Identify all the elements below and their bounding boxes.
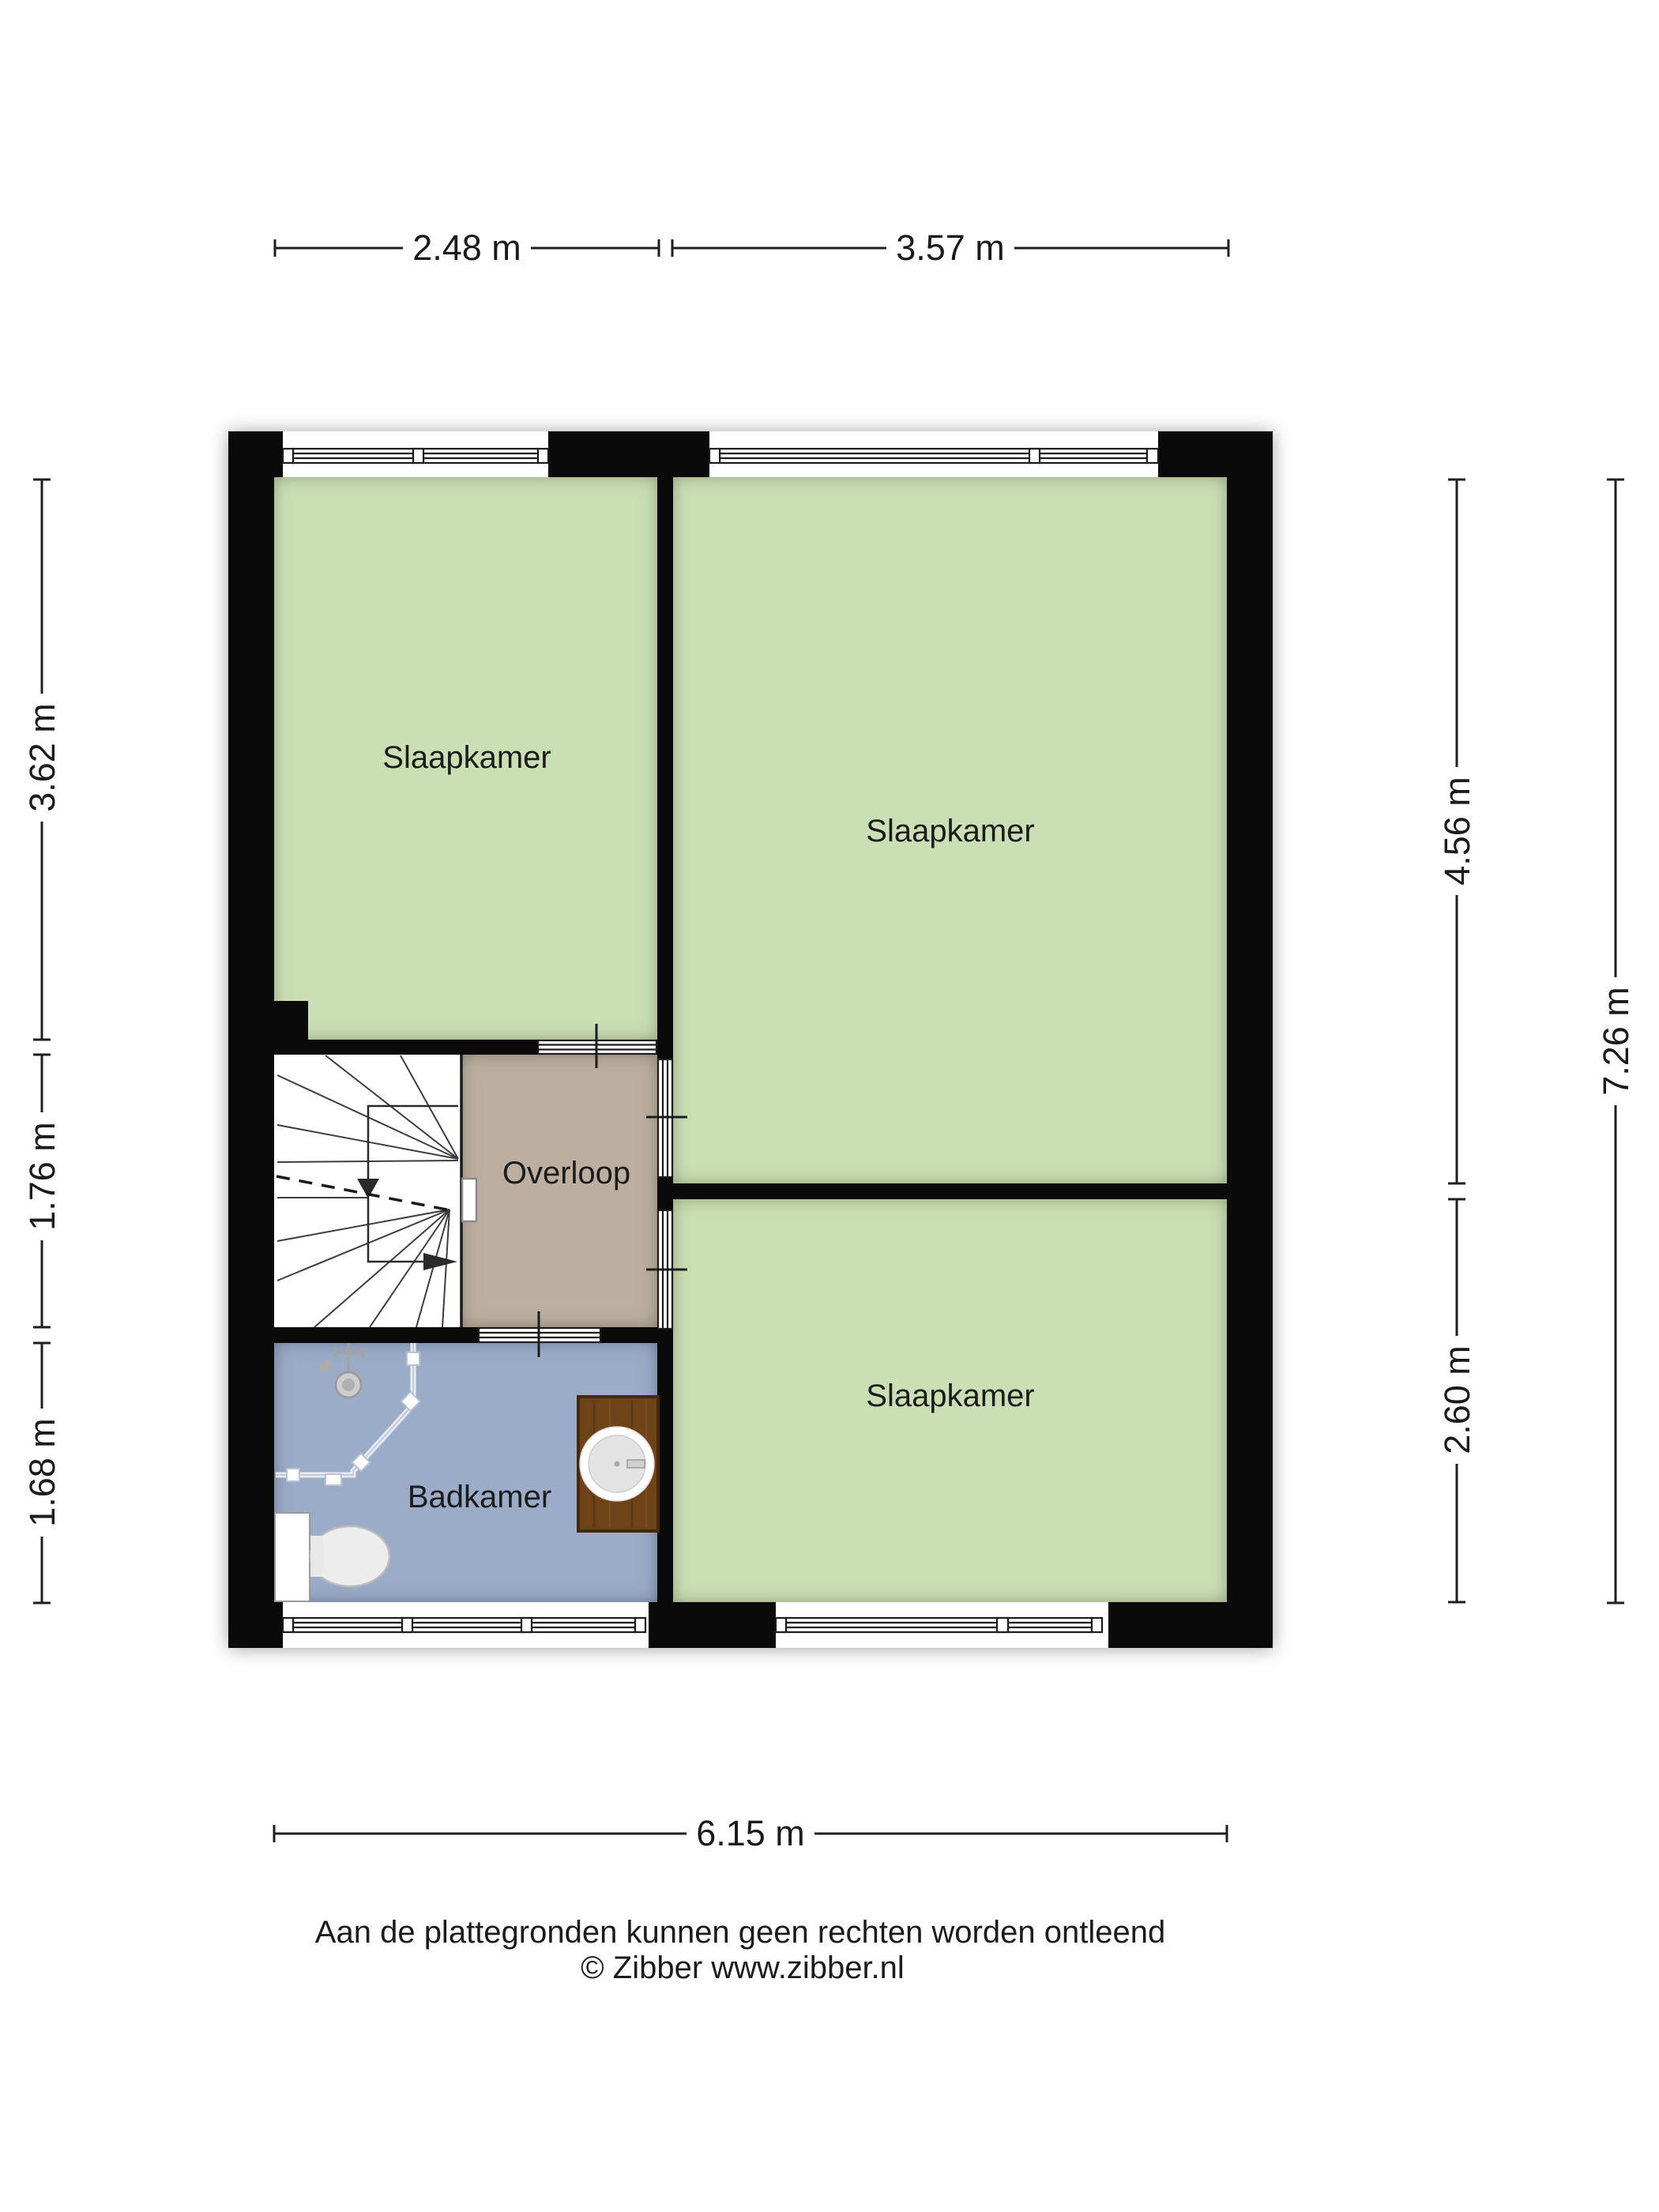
svg-text:7.26 m: 7.26 m <box>1596 987 1636 1096</box>
svg-text:1.76 m: 1.76 m <box>22 1122 62 1231</box>
svg-text:Slaapkamer: Slaapkamer <box>382 740 551 775</box>
svg-text:4.56 m: 4.56 m <box>1437 777 1477 886</box>
svg-text:2.60 m: 2.60 m <box>1437 1345 1477 1454</box>
svg-text:© Zibber www.zibber.nl: © Zibber www.zibber.nl <box>581 1951 905 1985</box>
svg-text:1.68 m: 1.68 m <box>22 1418 62 1527</box>
svg-text:Slaapkamer: Slaapkamer <box>866 1379 1034 1413</box>
svg-text:Badkamer: Badkamer <box>408 1480 551 1514</box>
svg-text:3.62 m: 3.62 m <box>22 703 62 812</box>
svg-text:2.48 m: 2.48 m <box>412 228 521 268</box>
svg-text:6.15 m: 6.15 m <box>696 1813 805 1853</box>
svg-text:Aan de plattegronden kunnen ge: Aan de plattegronden kunnen geen rechten… <box>315 1915 1165 1950</box>
svg-text:Slaapkamer: Slaapkamer <box>866 814 1034 848</box>
svg-text:3.57 m: 3.57 m <box>896 228 1005 268</box>
svg-text:Overloop: Overloop <box>502 1156 630 1191</box>
